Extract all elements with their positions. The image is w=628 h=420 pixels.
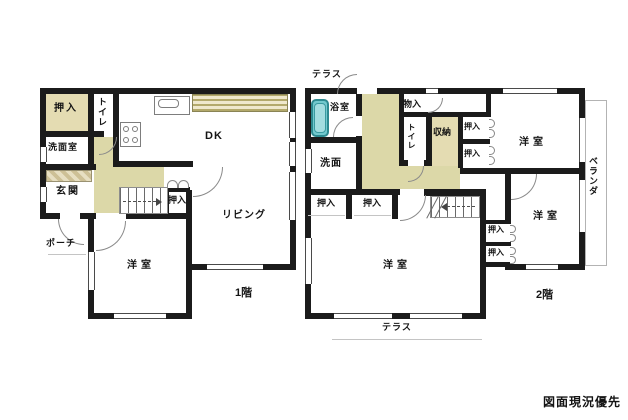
window [334,313,392,319]
floor-title-2f: 2階 [536,290,553,301]
staircase [430,196,480,218]
room-label-bedroom: 洋室 [533,212,561,222]
room-label-terrace: テラス [382,323,412,332]
window [410,313,462,319]
wall [424,189,486,196]
folding-door-icon [489,156,495,165]
wall [40,88,296,94]
wall [356,136,362,195]
room-label-bedroom: 洋室 [383,261,411,271]
room-label-toilet: トイレ [407,123,415,150]
folding-door-icon [489,119,495,128]
room-label-porch: ポーチ [46,239,76,248]
room-label-entrance: 玄関 [56,187,80,197]
door-swing-arc [96,221,126,251]
room-label-storage-small: 物入 [403,100,421,109]
room-label-bedroom: 洋室 [127,261,155,271]
window [289,172,296,220]
folding-door-icon [489,146,495,155]
wall [356,94,362,116]
wall [186,190,192,319]
door-swing-arc [333,117,353,137]
wall [480,189,486,319]
room-label-closet: 押入 [464,123,480,131]
folding-door-icon [510,234,516,242]
room-label-closet: 押入 [464,150,480,158]
room-label-washroom: 洗面室 [48,143,78,152]
window [526,264,558,270]
window [88,252,95,290]
folding-door-icon [510,225,516,233]
wall [486,220,511,224]
room-label-bedroom: 洋室 [519,138,547,148]
door-swing-arc [511,174,537,200]
folding-door-icon [178,180,189,188]
door-swing-arc [428,98,443,113]
room-label-closet: 押入 [168,196,186,205]
wall [463,139,490,144]
porch-step-line [48,254,86,255]
room-label-terrace: テラス [312,70,342,79]
room-label-storage: 収納 [433,128,451,137]
floor-plan-canvas: 押入 トイレ 洗面室 玄関 ポーチ DK 押入 リビング 洋室 1階 [0,0,628,420]
folding-door-icon [489,129,495,138]
stove-burner-icon [132,137,138,143]
kitchen-sink-icon [158,99,179,108]
window [503,88,557,94]
wall [40,164,96,170]
wall [305,189,400,195]
stair-direction-arrow [441,203,447,211]
window [426,88,438,94]
wall [113,161,193,167]
wall [113,88,119,167]
wall [305,137,362,143]
room-label-bathroom: 浴室 [330,103,350,112]
bathtub-icon [314,103,326,133]
window-hatch-band [192,94,288,112]
hallway-floor [362,94,399,189]
room-label-washroom: 洗面 [320,159,342,169]
door-swing-arc [400,195,426,221]
room-label-closet: 押入 [488,226,504,234]
window [40,187,47,202]
wall [40,213,60,219]
stove-burner-icon [123,126,129,132]
room-label-veranda: ベランダ [588,156,597,196]
wall [399,160,408,166]
room-label-closet: 押入 [54,104,78,114]
wall [399,112,490,117]
window [40,147,47,162]
wall [426,112,432,166]
terrace-line [332,339,482,340]
closet-door-line [354,215,391,216]
closet-floor [431,117,458,166]
room-label-dk: DK [205,131,223,142]
closet-door-line [308,215,345,216]
stair-direction-arrow [156,198,162,206]
stair-direction-arrow [123,201,156,202]
floor-title-1f: 1階 [235,288,252,299]
window [305,149,312,173]
window [289,142,296,166]
window [305,238,312,284]
wall [346,195,352,219]
room-label-closet: 押入 [317,199,335,208]
room-label-toilet: トイレ [97,97,106,127]
window [289,112,296,138]
folding-door-icon [510,247,516,255]
door-swing-arc [193,167,223,197]
wall [486,94,491,117]
room-label-living: リビング [222,211,266,221]
wall [486,242,511,246]
wall [392,195,398,219]
folding-door-icon [510,256,516,264]
window [207,264,263,270]
stair-direction-arrow [447,206,475,207]
folding-door-icon [167,180,178,188]
room-label-closet: 押入 [363,199,381,208]
window [114,313,166,319]
stove-burner-icon [123,137,129,143]
stove-burner-icon [132,126,138,132]
room-label-closet: 押入 [488,249,504,257]
drawing-priority-note: 図面現況優先 [543,396,621,408]
entrance-step [46,170,92,182]
